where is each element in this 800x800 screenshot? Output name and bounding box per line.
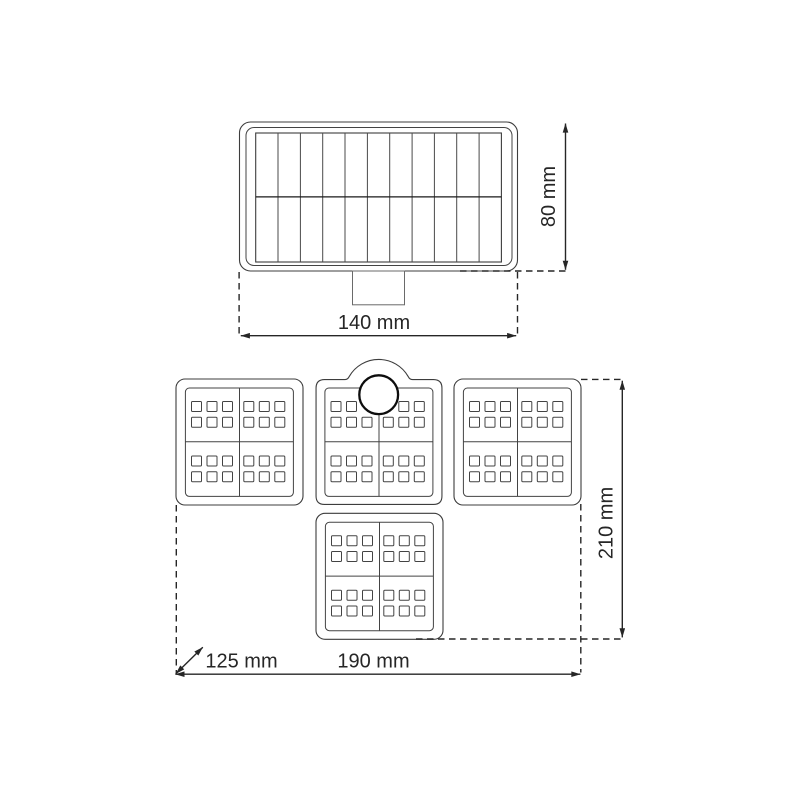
svg-text:125 mm: 125 mm: [205, 650, 277, 672]
svg-text:140 mm: 140 mm: [338, 312, 410, 334]
svg-text:210 mm: 210 mm: [595, 487, 617, 559]
svg-text:190 mm: 190 mm: [337, 650, 409, 672]
svg-text:80 mm: 80 mm: [538, 166, 560, 227]
